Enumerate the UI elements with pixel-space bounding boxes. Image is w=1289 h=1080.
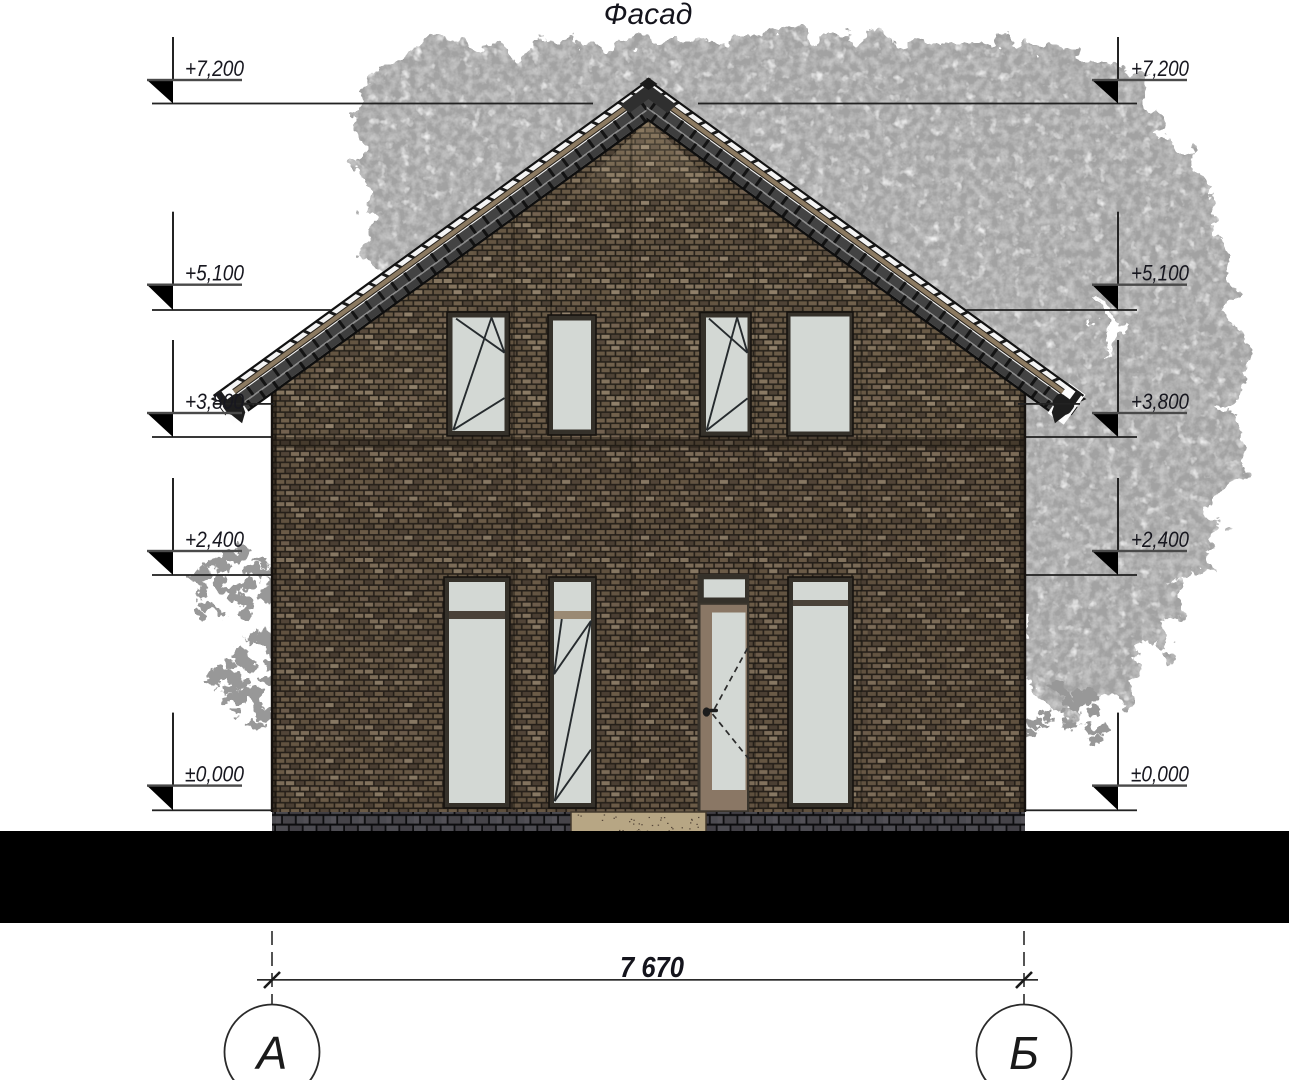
svg-text:А: А xyxy=(254,1027,288,1079)
svg-text:±0,000: ±0,000 xyxy=(1131,762,1189,787)
svg-text:+3,800: +3,800 xyxy=(1131,389,1189,414)
svg-text:+2,400: +2,400 xyxy=(185,527,244,552)
svg-text:+5,100: +5,100 xyxy=(185,261,244,286)
svg-text:+7,200: +7,200 xyxy=(1131,56,1189,81)
svg-text:Фасад: Фасад xyxy=(604,0,693,31)
svg-text:Б: Б xyxy=(1009,1027,1039,1079)
svg-text:+3,800: +3,800 xyxy=(185,389,244,414)
svg-text:+7,200: +7,200 xyxy=(185,56,244,81)
svg-text:±0,000: ±0,000 xyxy=(185,762,244,787)
svg-text:+2,400: +2,400 xyxy=(1131,527,1189,552)
svg-text:+5,100: +5,100 xyxy=(1131,261,1189,286)
svg-text:7 670: 7 670 xyxy=(620,952,684,984)
